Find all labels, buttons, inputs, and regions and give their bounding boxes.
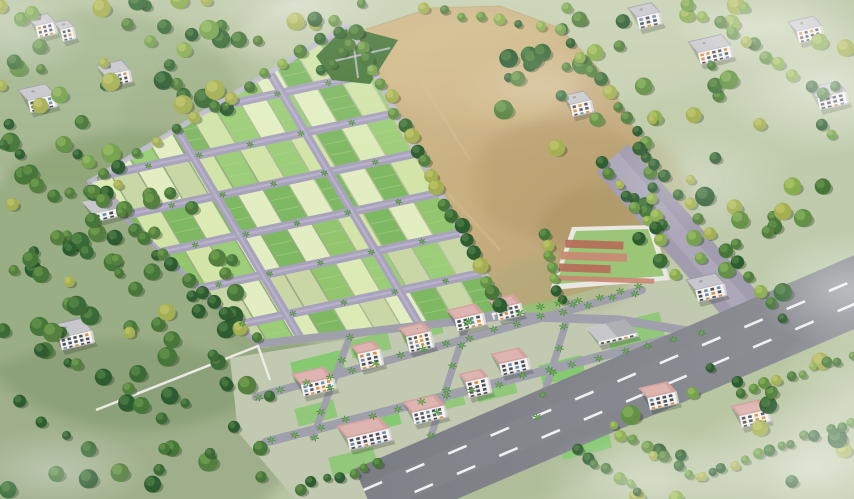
mist-patch xyxy=(450,48,630,128)
mist-patch xyxy=(605,125,795,235)
scene-svg xyxy=(0,0,854,499)
aerial-site-render xyxy=(0,0,854,499)
mist-haze xyxy=(0,0,854,499)
